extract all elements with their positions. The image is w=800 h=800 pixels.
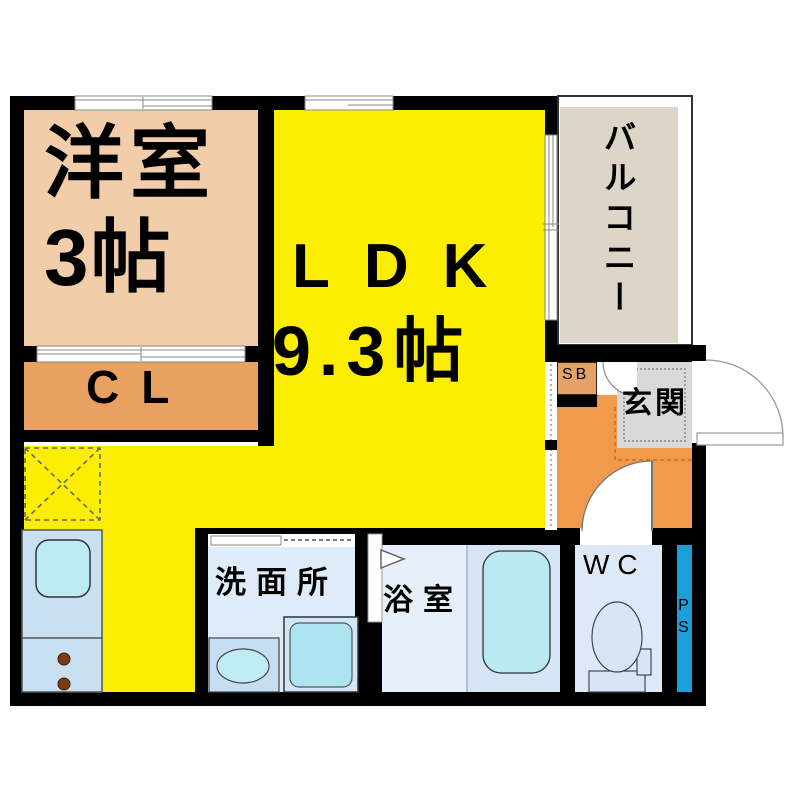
balcony-window (545, 135, 557, 320)
wall (195, 528, 208, 692)
bathtub (483, 551, 550, 673)
wall (545, 440, 557, 450)
entrance-door-leaf (697, 433, 783, 445)
wall (258, 110, 274, 446)
kitchen-sink (36, 540, 90, 597)
washroom-sliding-panel (211, 536, 281, 545)
label-washroom: 洗面所 (215, 567, 338, 598)
window (305, 96, 393, 110)
label-closet: CL (86, 364, 191, 410)
ldk-floor (24, 446, 274, 530)
wall (557, 395, 597, 407)
label-entrance: 玄関 (622, 389, 688, 419)
wall (368, 622, 382, 692)
label-pipe-space: PS (675, 597, 691, 641)
label-wc: WC (583, 551, 646, 579)
wall (355, 528, 580, 545)
wall (652, 528, 706, 545)
toilet-bowl (592, 602, 642, 672)
floor-plan: 洋室 3帖 LDK 9.3帖 CL バルコニー 玄関 SB 洗面所 浴室 WC … (0, 0, 800, 800)
label-western-room: 洋室 (44, 124, 216, 204)
label-shoebox: SB (562, 367, 589, 383)
wall (545, 345, 706, 362)
washbasin (217, 649, 269, 683)
stove-burner (58, 678, 70, 690)
label-ldk-size: 9.3帖 (272, 316, 471, 386)
kitchen-counter (22, 530, 102, 692)
bathroom-door (368, 534, 382, 622)
entrance-doorway (692, 361, 706, 443)
label-ldk: LDK (292, 236, 521, 298)
label-bathroom: 浴室 (383, 586, 463, 616)
wall (393, 96, 557, 110)
wall (560, 545, 575, 692)
wall (212, 96, 305, 110)
wall (10, 430, 274, 442)
wall (208, 528, 355, 534)
entrance-door-arc (706, 360, 783, 437)
wall (245, 346, 274, 362)
wall (10, 346, 37, 362)
label-balcony: バルコニー (601, 120, 634, 320)
wall (545, 96, 557, 135)
label-western-room-size: 3帖 (44, 218, 173, 298)
stove-burner (58, 653, 70, 665)
wall (545, 320, 557, 345)
bathroom-floor (382, 545, 467, 692)
washing-machine-pan-inner (290, 623, 352, 687)
wall (10, 692, 706, 706)
